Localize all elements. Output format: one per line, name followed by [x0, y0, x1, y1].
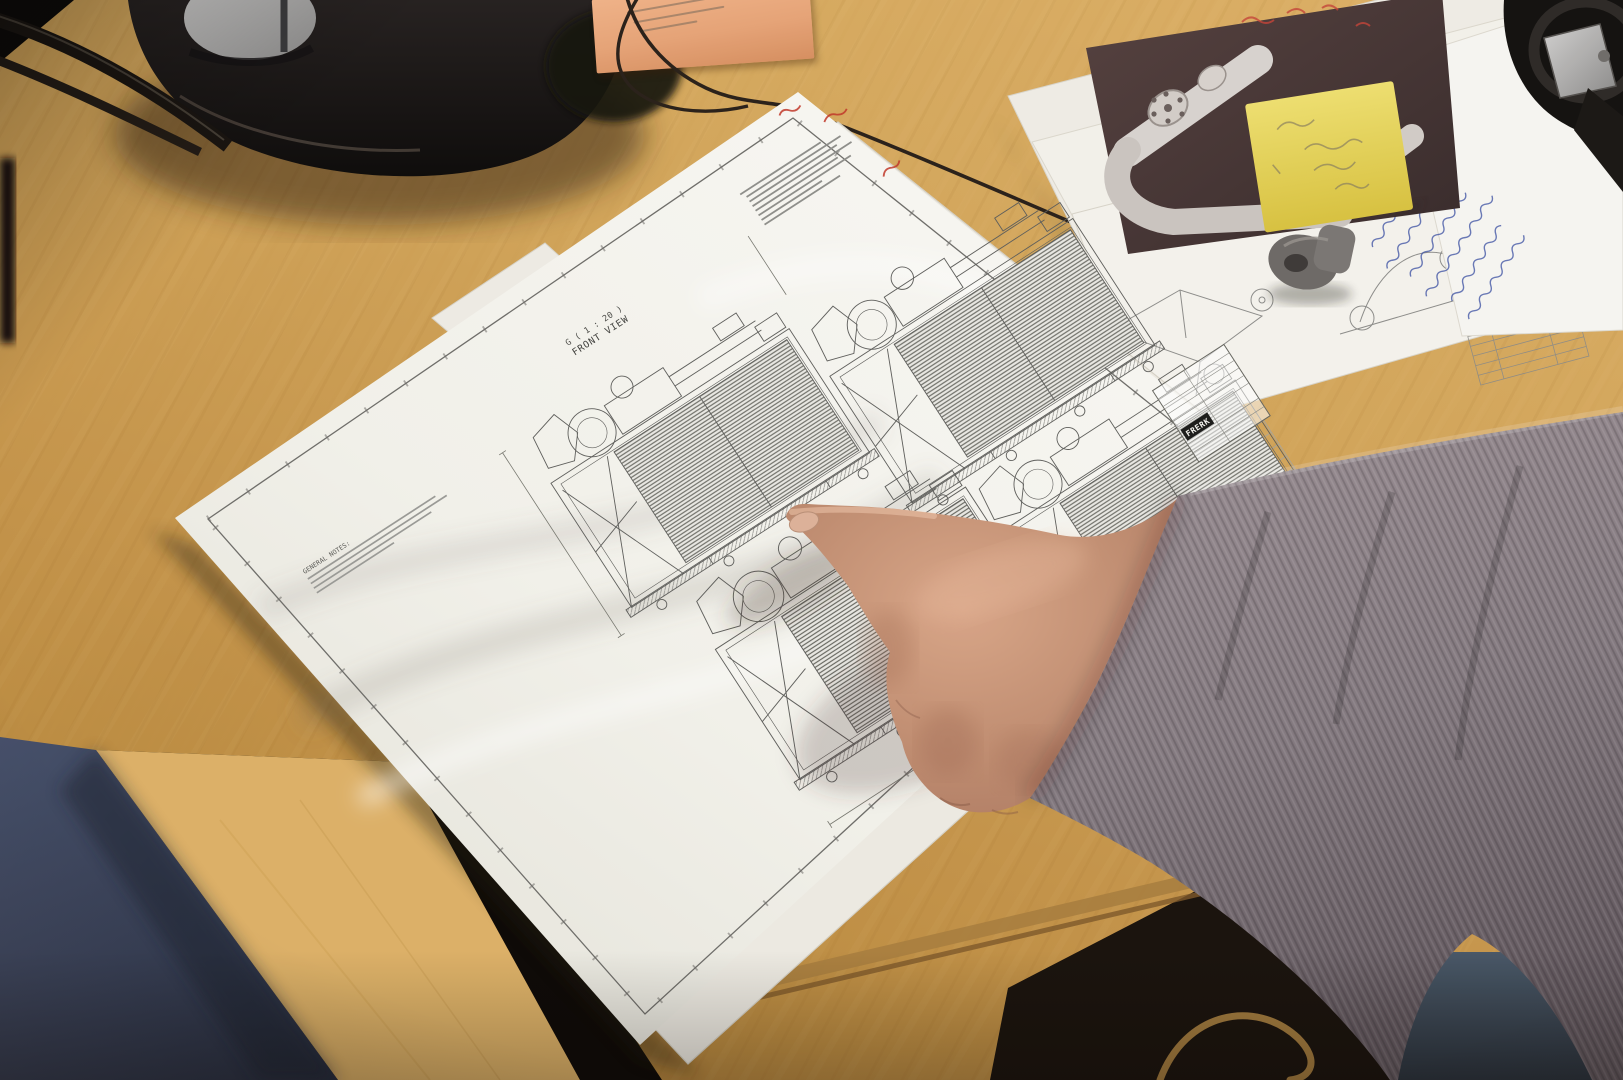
desk-photo-scene: G ( 1 : 20 ) FRONT VIEW F ( 1 : 20 ) REA… — [0, 0, 1623, 1080]
sleeve-rib-texture — [1030, 412, 1623, 1080]
hand-layer — [0, 0, 1623, 1080]
